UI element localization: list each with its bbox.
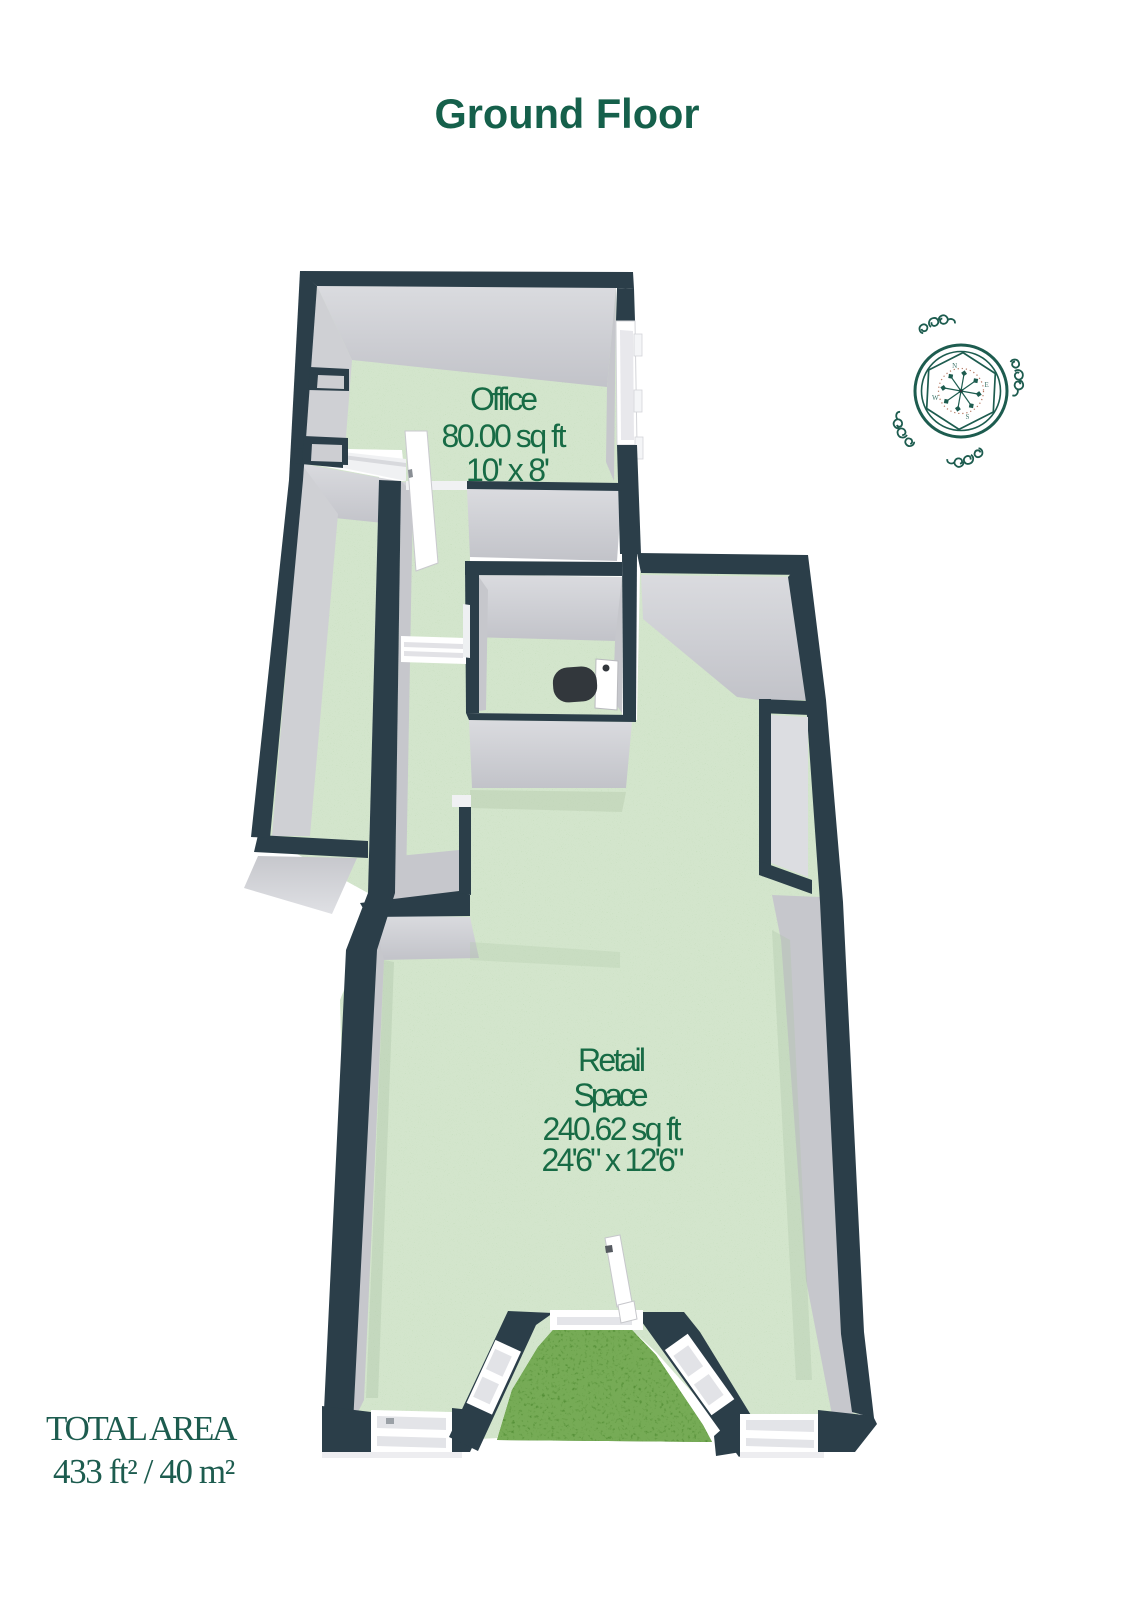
svg-text:Retail: Retail bbox=[578, 1042, 646, 1078]
svg-text:Ground Floor: Ground Floor bbox=[434, 90, 699, 137]
svg-text:80.00 sq ft: 80.00 sq ft bbox=[442, 418, 567, 454]
svg-text:S: S bbox=[965, 413, 969, 421]
svg-text:433 ft² / 40 m²: 433 ft² / 40 m² bbox=[53, 1452, 235, 1491]
svg-text:N: N bbox=[952, 362, 957, 370]
svg-text:24'6" x 12'6": 24'6" x 12'6" bbox=[542, 1142, 685, 1178]
svg-text:E: E bbox=[985, 381, 989, 389]
svg-text:TOTAL AREA: TOTAL AREA bbox=[46, 1409, 238, 1448]
svg-text:Office: Office bbox=[470, 381, 538, 417]
svg-text:10' x 8': 10' x 8' bbox=[466, 452, 550, 488]
svg-text:Space: Space bbox=[574, 1077, 649, 1113]
svg-text:W: W bbox=[932, 394, 939, 402]
